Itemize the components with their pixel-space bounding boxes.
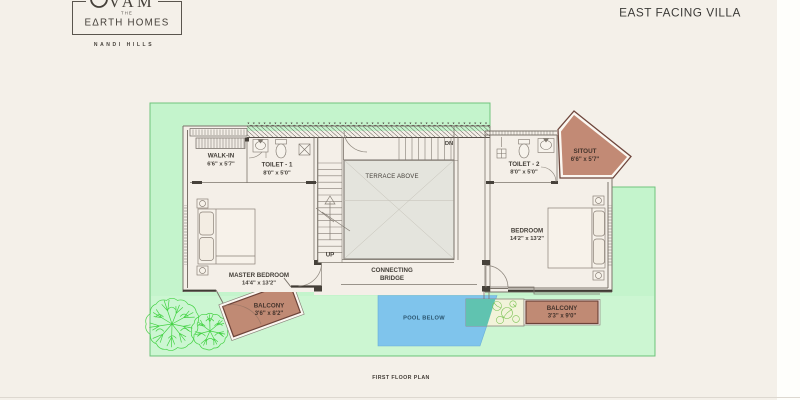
svg-text:FIRST FLOOR PLAN: FIRST FLOOR PLAN bbox=[372, 375, 430, 381]
svg-text:6'6" x 5'7": 6'6" x 5'7" bbox=[571, 157, 600, 163]
svg-text:UP: UP bbox=[326, 252, 335, 259]
svg-text:CONNECTING: CONNECTING bbox=[371, 267, 413, 274]
svg-text:MASTER BEDROOM: MASTER BEDROOM bbox=[229, 272, 289, 279]
svg-text:TOILET - 2: TOILET - 2 bbox=[509, 161, 540, 168]
svg-text:EΔRTH HOMES: EΔRTH HOMES bbox=[85, 18, 170, 29]
svg-text:EAST FACING VILLA: EAST FACING VILLA bbox=[619, 6, 741, 20]
svg-text:8'0" x 5'0": 8'0" x 5'0" bbox=[510, 170, 538, 176]
svg-text:NANDI HILLS: NANDI HILLS bbox=[94, 42, 154, 48]
svg-text:14'4" x 13'2": 14'4" x 13'2" bbox=[242, 281, 276, 287]
svg-text:TOILET - 1: TOILET - 1 bbox=[262, 162, 293, 169]
svg-text:BEDROOM: BEDROOM bbox=[511, 228, 543, 235]
svg-text:TERRACE ABOVE: TERRACE ABOVE bbox=[365, 174, 418, 180]
svg-text:DN: DN bbox=[445, 141, 453, 147]
svg-text:THE: THE bbox=[121, 11, 133, 16]
svg-text:BALCONY: BALCONY bbox=[254, 303, 285, 310]
svg-text:BRIDGE: BRIDGE bbox=[380, 275, 404, 282]
svg-text:3'6" x 8'2": 3'6" x 8'2" bbox=[255, 311, 284, 317]
svg-text:6'6" x 5'7": 6'6" x 5'7" bbox=[207, 162, 235, 168]
svg-text:POOL BELOW: POOL BELOW bbox=[403, 316, 445, 322]
svg-text:BALCONY: BALCONY bbox=[547, 305, 578, 312]
svg-text:SITOUT: SITOUT bbox=[574, 148, 597, 155]
svg-text:8'0" x 5'0": 8'0" x 5'0" bbox=[263, 171, 291, 177]
svg-text:14'2" x 13'2": 14'2" x 13'2" bbox=[510, 236, 544, 242]
svg-text:3'3" x 9'0": 3'3" x 9'0" bbox=[548, 314, 577, 320]
svg-text:WALK-IN: WALK-IN bbox=[208, 153, 235, 160]
